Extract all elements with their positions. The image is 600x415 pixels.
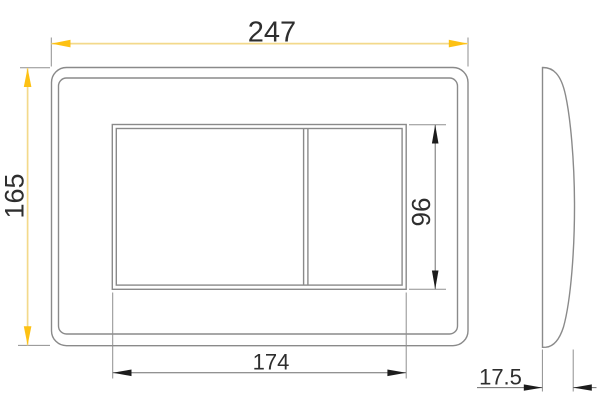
dim-overall-width-label: 247: [248, 17, 296, 49]
arrow-left-icon: [51, 40, 70, 48]
arrow-right-icon: [387, 370, 406, 377]
side-view: [543, 67, 575, 347]
technical-drawing-page: 247 165 96 174: [0, 0, 600, 415]
arrow-down-icon: [24, 326, 32, 345]
arrow-left-icon: [573, 384, 592, 390]
dim-overall-height: 165: [0, 68, 50, 346]
dim-depth-label: 17.5: [479, 365, 522, 390]
dim-cutout-width-label: 174: [253, 350, 290, 375]
dim-cutout-height-label: 96: [406, 198, 436, 227]
dim-depth: 17.5: [477, 350, 597, 392]
dim-overall-width: 247: [51, 17, 468, 67]
arrow-left-icon: [113, 370, 132, 377]
arrow-right-icon: [524, 384, 543, 390]
technical-drawing: 247 165 96 174: [0, 0, 600, 415]
arrow-right-icon: [449, 40, 468, 48]
side-profile-outline: [543, 67, 575, 347]
arrow-up-icon: [24, 68, 32, 87]
dim-overall-height-label: 165: [0, 173, 30, 218]
